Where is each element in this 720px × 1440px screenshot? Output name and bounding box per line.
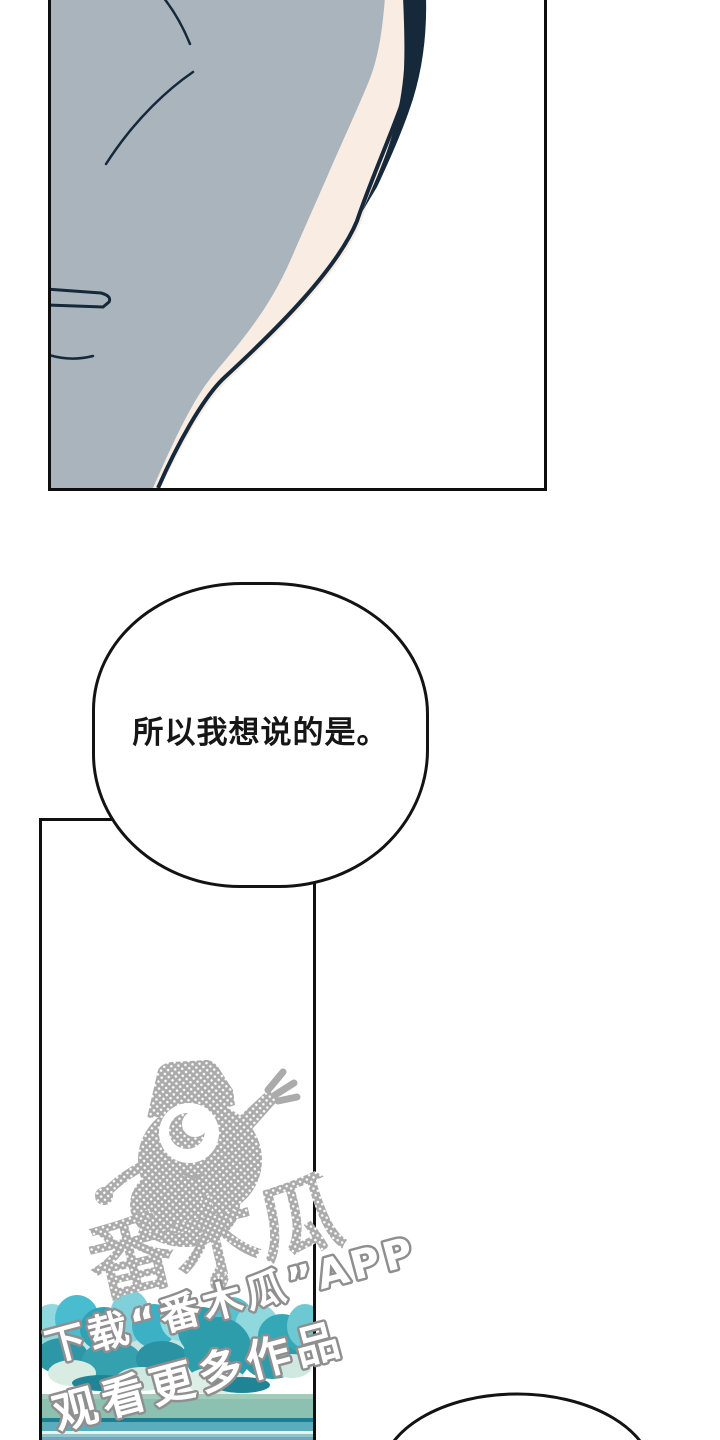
jacket-closeup-drawing [51,0,544,488]
speech-bubble-main: 所以我想说的是。 [92,582,429,888]
undergrowth [72,1375,270,1393]
speech-bubble-next [381,1394,653,1440]
waterside-stripes [42,1418,313,1440]
park-scene-drawing [42,821,313,1440]
panel-park-scene [39,818,316,1440]
comic-page: 所以我想说的是。 [0,0,720,1440]
jacket-pocket [51,289,110,307]
ground [42,1399,313,1420]
speech-bubble-main-text: 所以我想说的是。 [133,707,389,752]
panel-jacket-closeup [48,0,547,491]
